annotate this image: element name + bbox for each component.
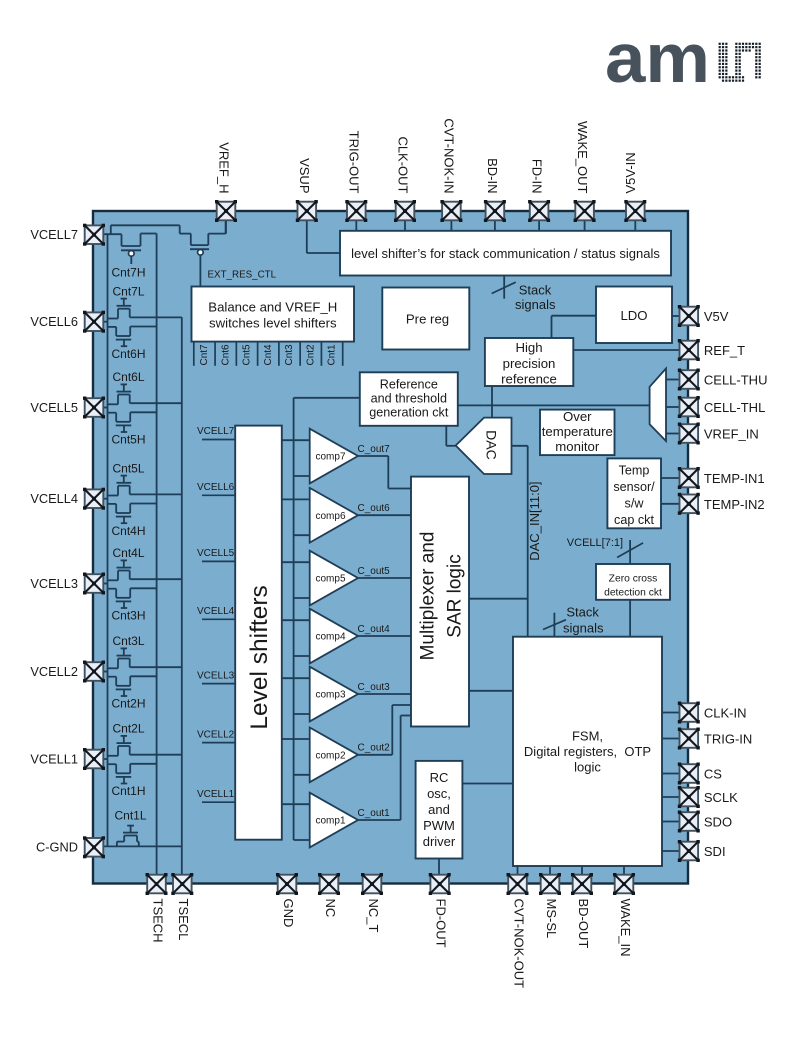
svg-text:and: and [428,802,450,817]
svg-text:REF_T: REF_T [704,343,745,358]
svg-text:VCELL3: VCELL3 [30,576,78,591]
svg-text:VCELL6: VCELL6 [30,314,78,329]
svg-text:FD-OUT: FD-OUT [434,899,449,948]
svg-text:VREF_IN: VREF_IN [704,427,759,442]
svg-text:Cnt5L: Cnt5L [112,461,144,475]
svg-text:TSECL: TSECL [176,899,191,941]
svg-text:signals: signals [563,620,604,635]
svg-text:VCELL4: VCELL4 [30,491,78,506]
svg-text:comp3: comp3 [316,690,346,701]
svg-text:Cnt2: Cnt2 [305,344,316,366]
svg-text:C_out6: C_out6 [358,503,391,514]
svg-text:C_out1: C_out1 [358,808,391,819]
svg-text:CVT-NOK-IN: CVT-NOK-IN [442,118,457,193]
svg-text:reference: reference [501,372,557,387]
svg-text:Stack: Stack [519,283,552,298]
svg-text:Cnt7L: Cnt7L [112,284,144,298]
svg-text:Pre reg: Pre reg [406,311,449,326]
svg-text:signals: signals [515,297,556,312]
svg-text:TSECH: TSECH [150,899,165,943]
svg-text:VREF_H: VREF_H [216,142,231,193]
svg-text:NC: NC [323,899,338,918]
svg-text:Cnt4: Cnt4 [263,344,274,366]
svg-text:detection ckt: detection ckt [604,588,662,599]
svg-text:V5V-IN: V5V-IN [623,152,638,193]
svg-text:BD-IN: BD-IN [485,158,500,193]
svg-text:NC_T: NC_T [366,899,381,933]
svg-text:monitor: monitor [555,439,600,454]
svg-text:switches level shifters: switches level shifters [209,316,337,331]
svg-text:PWM: PWM [423,818,455,833]
svg-text:BD-OUT: BD-OUT [576,899,591,949]
svg-text:RC: RC [430,770,449,785]
svg-text:level shifter’s for stack comm: level shifter’s for stack communication … [351,246,660,261]
svg-text:VSUP: VSUP [297,158,312,193]
svg-text:logic: logic [574,760,601,775]
svg-text:comp1: comp1 [316,816,346,827]
svg-text:comp6: comp6 [316,511,346,522]
svg-text:VCELL[7:1]: VCELL[7:1] [567,537,623,549]
svg-text:WAKE_IN: WAKE_IN [618,899,633,957]
svg-text:Cnt3H: Cnt3H [111,609,145,623]
svg-text:Cnt7H: Cnt7H [111,265,145,279]
svg-text:CVT-NOK-OUT: CVT-NOK-OUT [511,899,526,989]
svg-text:VCELL1: VCELL1 [197,789,235,800]
svg-text:and threshold: and threshold [371,391,447,405]
svg-text:MS-SL: MS-SL [544,899,559,939]
svg-text:Temp: Temp [619,463,650,477]
svg-text:VCELL4: VCELL4 [197,606,235,617]
svg-text:VCELL7: VCELL7 [30,227,78,242]
svg-text:Level shifters: Level shifters [246,585,273,729]
svg-text:C_out2: C_out2 [358,743,391,754]
svg-text:High: High [515,340,542,355]
svg-text:Cnt6: Cnt6 [220,344,231,366]
svg-text:VCELL6: VCELL6 [197,482,235,493]
svg-text:C_out5: C_out5 [358,566,391,577]
svg-text:Cnt5H: Cnt5H [111,433,145,447]
svg-text:Cnt6H: Cnt6H [111,347,145,361]
svg-text:TEMP-IN2: TEMP-IN2 [704,497,765,512]
svg-text:VCELL5: VCELL5 [30,400,78,415]
svg-text:CLK-IN: CLK-IN [704,706,747,721]
svg-text:Cnt6L: Cnt6L [112,370,144,384]
svg-text:CLK-OUT: CLK-OUT [395,136,410,193]
svg-text:comp7: comp7 [316,452,346,463]
svg-text:CELL-THU: CELL-THU [704,373,768,388]
svg-text:LDO: LDO [620,308,647,323]
svg-text:GND: GND [281,899,296,928]
svg-text:CS: CS [704,767,722,782]
svg-text:comp5: comp5 [316,574,346,585]
svg-text:Cnt4H: Cnt4H [111,524,145,538]
svg-text:VCELL5: VCELL5 [197,548,235,559]
svg-text:TRIG-IN: TRIG-IN [704,732,752,747]
svg-text:SCLK: SCLK [704,790,738,805]
svg-text:C-GND: C-GND [36,840,78,855]
svg-text:FSM,: FSM, [572,728,603,743]
svg-text:VCELL1: VCELL1 [30,751,78,766]
svg-text:Zero cross: Zero cross [609,574,658,585]
svg-text:temperature: temperature [542,424,613,439]
svg-text:Cnt2H: Cnt2H [111,697,145,711]
svg-text:am: am [605,19,710,97]
svg-text:Balance and VREF_H: Balance and VREF_H [208,300,337,315]
svg-text:s/w: s/w [625,497,645,511]
svg-text:DAC_IN[11:0]: DAC_IN[11:0] [527,481,542,560]
svg-text:Cnt1: Cnt1 [327,344,338,366]
svg-text:VCELL2: VCELL2 [197,730,235,741]
svg-text:Stack: Stack [566,605,599,620]
svg-text:Cnt2L: Cnt2L [112,722,144,736]
svg-text:cap ckt: cap ckt [614,513,654,527]
svg-text:Cnt1H: Cnt1H [111,784,145,798]
svg-text:Cnt3L: Cnt3L [112,634,144,648]
svg-text:DAC: DAC [484,430,500,460]
svg-text:Reference: Reference [380,377,438,391]
svg-text:comp2: comp2 [316,750,346,761]
svg-text:generation ckt: generation ckt [369,406,449,420]
svg-text:Cnt3: Cnt3 [284,344,295,366]
svg-text:VCELL7: VCELL7 [197,426,235,437]
svg-text:FD-IN: FD-IN [529,159,544,194]
svg-text:WAKE_OUT: WAKE_OUT [575,121,590,194]
svg-text:VCELL2: VCELL2 [30,664,78,679]
svg-text:comp4: comp4 [316,632,346,643]
svg-text:sensor/: sensor/ [613,480,655,494]
svg-text:V5V: V5V [704,309,729,324]
svg-text:SDI: SDI [704,844,726,859]
svg-text:VCELL3: VCELL3 [197,671,235,682]
svg-text:Digital registers, OTP: Digital registers, OTP [524,744,651,759]
svg-text:C_out7: C_out7 [358,444,391,455]
svg-text:Over: Over [563,409,592,424]
svg-text:Cnt7: Cnt7 [199,344,210,366]
svg-text:C_out4: C_out4 [358,624,391,635]
svg-text:SDO: SDO [704,815,732,830]
svg-text:Cnt4L: Cnt4L [112,546,144,560]
svg-text:C_out3: C_out3 [358,682,391,693]
svg-text:Cnt5: Cnt5 [242,344,253,366]
svg-text:Cnt1L: Cnt1L [114,809,146,823]
svg-text:TEMP-IN1: TEMP-IN1 [704,471,765,486]
svg-text:driver: driver [423,834,456,849]
svg-text:TRIG-OUT: TRIG-OUT [347,131,362,194]
svg-text:precision: precision [503,356,556,371]
svg-text:CELL-THL: CELL-THL [704,400,765,415]
svg-text:osc,: osc, [427,786,451,801]
svg-text:EXT_RES_CTL: EXT_RES_CTL [208,270,277,281]
